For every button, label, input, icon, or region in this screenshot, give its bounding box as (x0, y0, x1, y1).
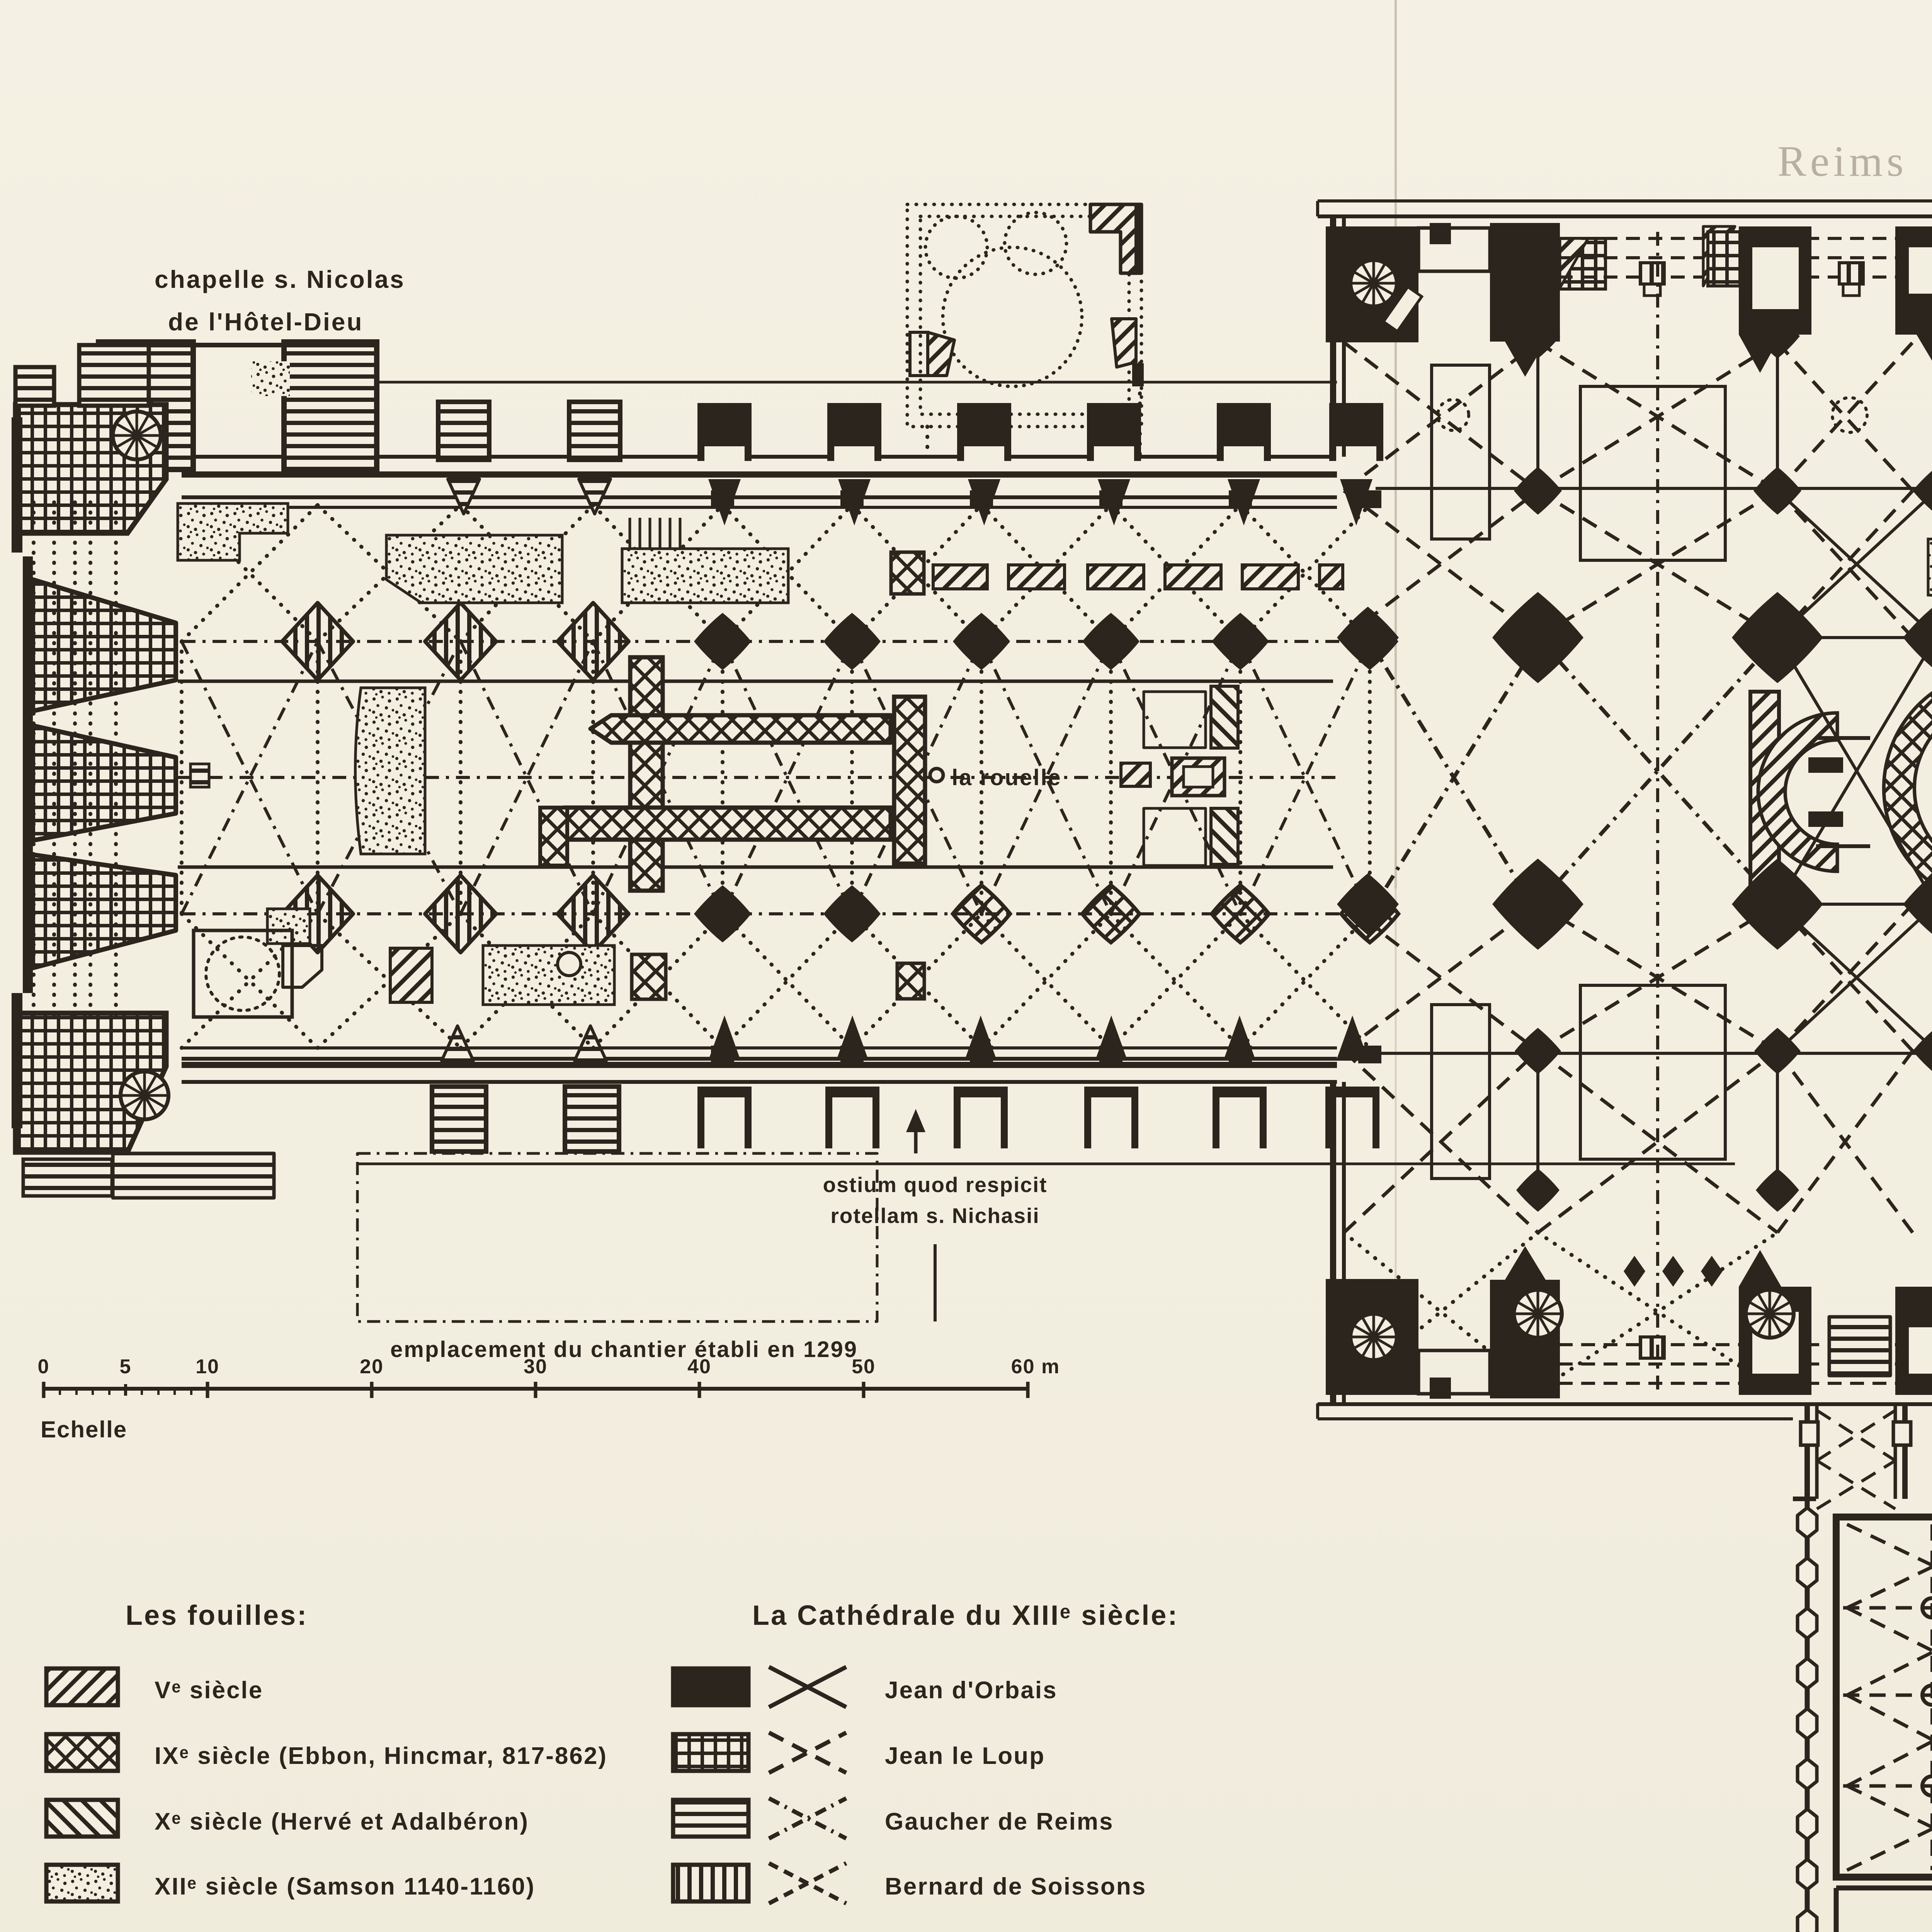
svg-text:10: 10 (196, 1355, 219, 1378)
svg-text:0: 0 (38, 1355, 50, 1378)
svg-text:Les fouilles:: Les fouilles: (126, 1600, 308, 1631)
svg-text:chapelle s. Nicolas: chapelle s. Nicolas (155, 265, 405, 293)
svg-text:IXᵉ siècle (Ebbon, Hincmar, 8: IXᵉ siècle (Ebbon, Hincmar, 817-862) (155, 1743, 607, 1769)
svg-text:60 m: 60 m (1011, 1355, 1060, 1378)
svg-text:Bernard de Soissons: Bernard de Soissons (885, 1873, 1146, 1900)
svg-text:Vᵉ siècle: Vᵉ siècle (155, 1677, 263, 1704)
svg-text:Xᵉ siècle (Hervé et Adalbéron: Xᵉ siècle (Hervé et Adalbéron) (155, 1808, 529, 1835)
svg-text:rotellam s. Nichasii: rotellam s. Nichasii (830, 1204, 1039, 1228)
svg-text:de l'Hôtel-Dieu: de l'Hôtel-Dieu (168, 308, 363, 336)
svg-text:La Cathédrale du XIIIᵉ sièc: La Cathédrale du XIIIᵉ siècle: (752, 1600, 1179, 1631)
svg-text:emplacement du chantier éta: emplacement du chantier établi en 1299 (390, 1337, 858, 1362)
svg-text:la rouelle: la rouelle (952, 765, 1062, 790)
svg-text:ostium quod respicit: ostium quod respicit (823, 1173, 1048, 1197)
svg-text:Jean d'Orbais: Jean d'Orbais (885, 1677, 1058, 1704)
svg-text:Gaucher de Reims: Gaucher de Reims (885, 1808, 1114, 1835)
svg-text:30: 30 (524, 1355, 548, 1378)
svg-text:Jean le Loup: Jean le Loup (885, 1743, 1045, 1769)
svg-text:20: 20 (360, 1355, 384, 1378)
svg-text:Echelle: Echelle (41, 1417, 127, 1442)
svg-text:40: 40 (687, 1355, 711, 1378)
svg-text:XIIᵉ siècle (Samson 1140-1160: XIIᵉ siècle (Samson 1140-1160) (155, 1873, 535, 1900)
svg-text:Reims: Reims (1777, 138, 1907, 185)
svg-text:50: 50 (852, 1355, 876, 1378)
svg-text:5: 5 (120, 1355, 132, 1378)
